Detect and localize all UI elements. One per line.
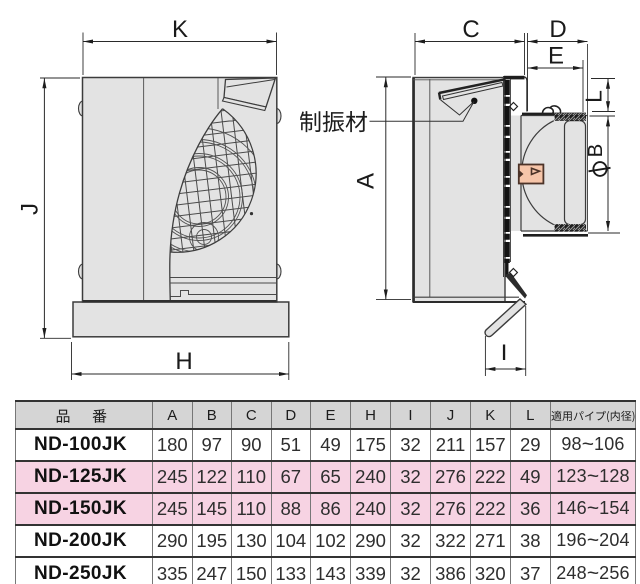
- svg-text:J: J: [17, 203, 44, 215]
- svg-text:D: D: [549, 16, 566, 43]
- svg-text:H: H: [175, 348, 192, 375]
- svg-text:E: E: [548, 43, 564, 70]
- svg-text:A: A: [353, 173, 380, 189]
- svg-text:K: K: [172, 16, 188, 43]
- svg-text:B: B: [584, 144, 607, 158]
- svg-text:C: C: [462, 16, 479, 43]
- svg-text:L: L: [581, 90, 607, 103]
